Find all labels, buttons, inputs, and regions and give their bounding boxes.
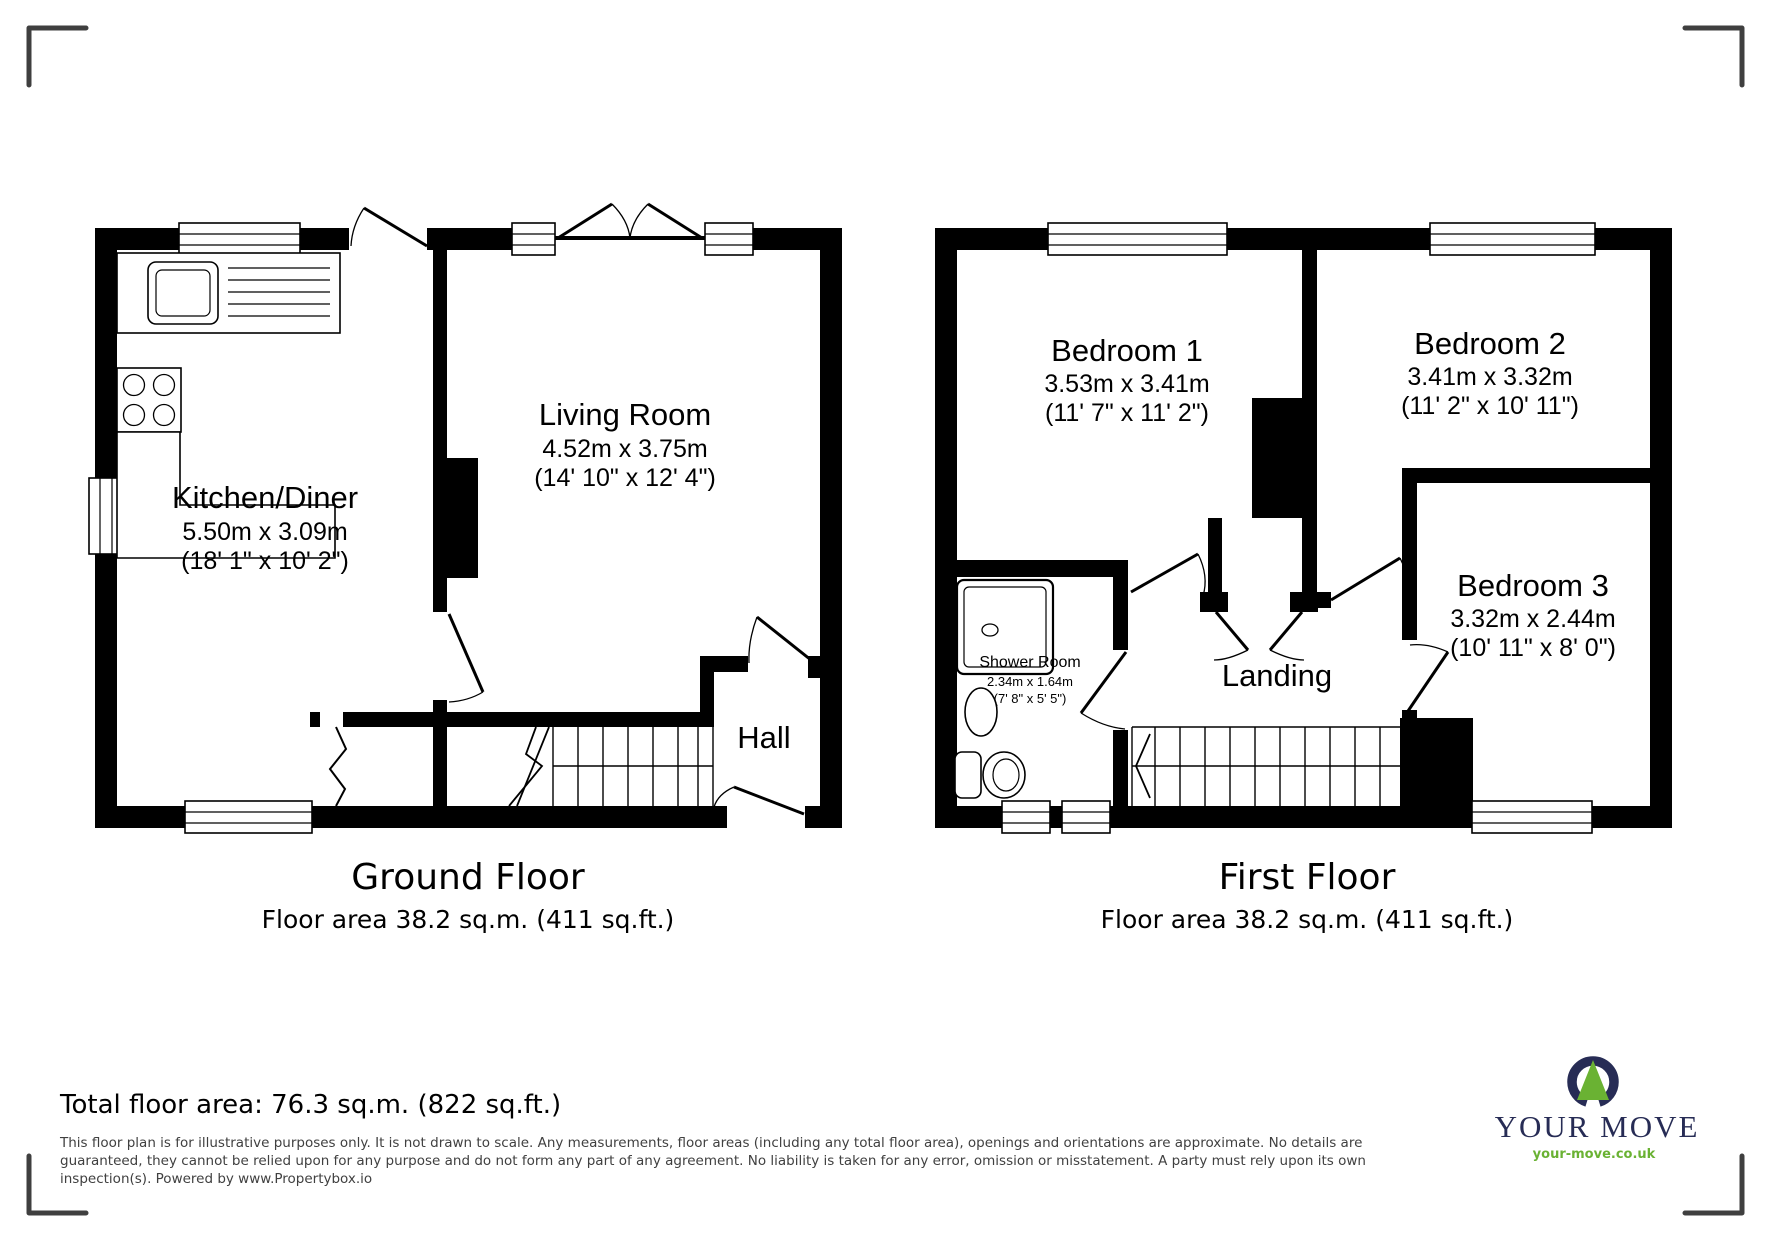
ground-labels: Kitchen/Diner 5.50m x 3.09m (18' 1" x 10… [172, 397, 791, 934]
bedroom3-label: Bedroom 3 [1457, 568, 1609, 603]
bracket-bottom-right-icon [1685, 1156, 1742, 1213]
ground-floor-title: Ground Floor [351, 857, 585, 898]
shower-room-label: Shower Room [979, 654, 1080, 671]
ground-floor-area: Floor area 38.2 sq.m. (411 sq.ft.) [262, 905, 675, 934]
logo-wordmark: YOUR MOVE [1495, 1109, 1700, 1144]
bedroom3-door [1406, 645, 1448, 714]
floorplan-canvas: Kitchen/Diner 5.50m x 3.09m (18' 1" x 10… [0, 0, 1771, 1239]
disclaimer-line-2: guaranteed, they cannot be relied upon f… [60, 1153, 1366, 1169]
hob-icon [117, 368, 181, 432]
chimney-breast [447, 458, 478, 578]
living-room-dim-imperial: (14' 10" x 12' 4") [534, 464, 716, 492]
first-floor-plan: Bedroom 1 3.53m x 3.41m (11' 7" x 11' 2"… [935, 223, 1672, 934]
french-doors [558, 204, 702, 238]
ground-stairs [509, 727, 713, 806]
total-floor-area: Total floor area: 76.3 sq.m. (822 sq.ft.… [59, 1090, 561, 1120]
bedroom2-door [1331, 558, 1409, 600]
first-floor-area: Floor area 38.2 sq.m. (411 sq.ft.) [1101, 905, 1514, 934]
bedroom1-door [1131, 554, 1205, 596]
kitchen-living-door [449, 614, 483, 702]
kitchen-label: Kitchen/Diner [172, 480, 358, 515]
ground-floor-plan: Kitchen/Diner 5.50m x 3.09m (18' 1" x 10… [89, 204, 842, 934]
bedroom1-dim-imperial: (11' 7" x 11' 2") [1045, 399, 1209, 427]
first-doors [1081, 554, 1448, 729]
kitchen-dim-imperial: (18' 1" x 10' 2") [181, 547, 349, 575]
living-window-right [705, 223, 753, 255]
shower-fixtures [955, 580, 1053, 798]
bedroom3-dim-imperial: (10' 11" x 8' 0") [1450, 634, 1616, 662]
kitchen-dim-metric: 5.50m x 3.09m [182, 518, 347, 546]
floorplan-page: Kitchen/Diner 5.50m x 3.09m (18' 1" x 10… [0, 0, 1771, 1239]
living-room-label: Living Room [539, 397, 711, 432]
bedroom1-label: Bedroom 1 [1051, 333, 1203, 368]
living-room-dim-metric: 4.52m x 3.75m [542, 435, 707, 463]
landing-window [1062, 801, 1110, 833]
first-floor-title: First Floor [1219, 857, 1396, 898]
disclaimer-line-3: inspection(s). Powered by www.Propertybo… [60, 1171, 372, 1187]
footer: Total floor area: 76.3 sq.m. (822 sq.ft.… [59, 1090, 1366, 1187]
kitchen-opening-symbol [330, 727, 346, 806]
shower-dim-imperial: (7' 8" x 5' 5") [994, 691, 1067, 706]
logo-url: your-move.co.uk [1533, 1147, 1656, 1162]
toilet-icon [955, 752, 1025, 798]
bedroom2-window [1430, 223, 1595, 255]
front-door [714, 787, 804, 814]
bedroom2-dim-imperial: (11' 2" x 10' 11") [1401, 392, 1579, 420]
living-hall-door [749, 617, 816, 664]
bedroom1-dim-metric: 3.53m x 3.41m [1044, 370, 1209, 398]
bracket-top-right-icon [1685, 28, 1742, 85]
bedroom1-window [1048, 223, 1227, 255]
bedroom2-dim-metric: 3.41m x 3.32m [1407, 363, 1572, 391]
bedroom2-label: Bedroom 2 [1414, 326, 1566, 361]
bracket-top-left-icon [29, 28, 86, 85]
bedroom3-dim-metric: 3.32m x 2.44m [1450, 605, 1615, 633]
shower-door [1081, 652, 1126, 729]
cupboard-doors [1214, 612, 1304, 660]
first-windows [1002, 223, 1595, 833]
kitchen-rear-window [185, 801, 312, 833]
living-window-left [512, 223, 555, 255]
shower-dim-metric: 2.34m x 1.64m [987, 674, 1073, 689]
kitchen-window [179, 223, 300, 255]
bedroom3-window [1472, 801, 1592, 833]
back-door [351, 208, 427, 246]
chimney-stack [1252, 398, 1317, 518]
landing-label: Landing [1222, 658, 1332, 693]
hall-label: Hall [737, 720, 790, 755]
shower-window [1002, 801, 1050, 833]
your-move-logo: YOUR MOVE your-move.co.uk [1495, 1060, 1700, 1162]
disclaimer-line-1: This floor plan is for illustrative purp… [59, 1135, 1362, 1151]
basin-icon [965, 688, 997, 736]
first-stairs [1132, 727, 1400, 806]
